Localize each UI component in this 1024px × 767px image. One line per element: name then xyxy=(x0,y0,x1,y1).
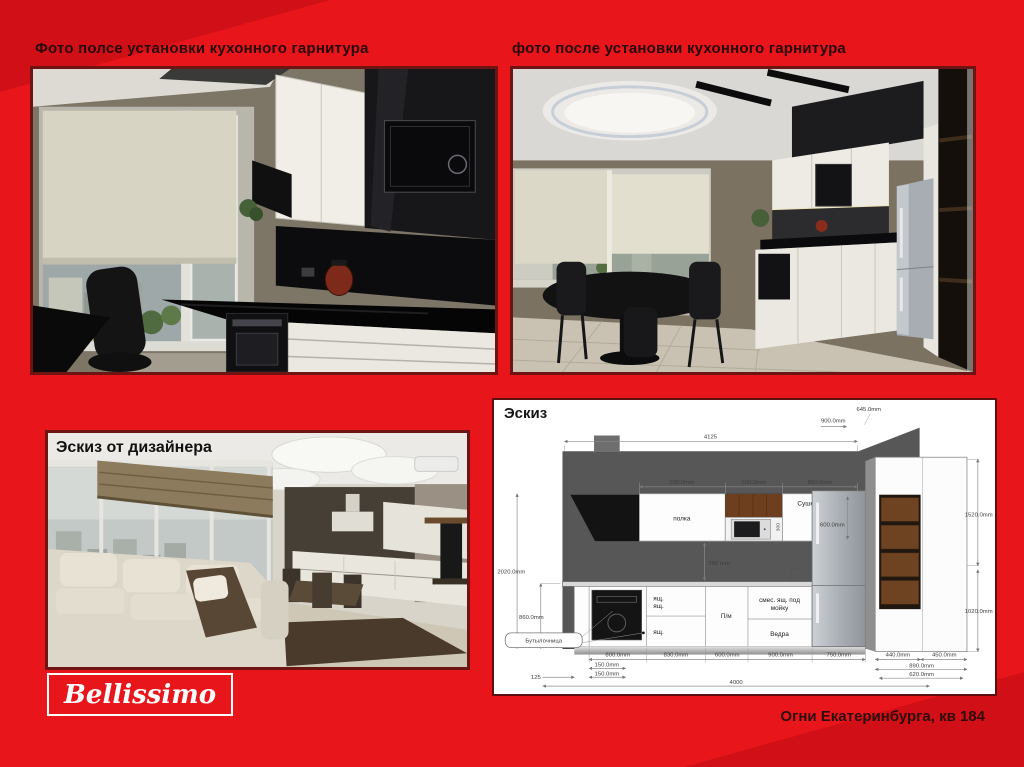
cabinet-label: ящ. xyxy=(653,603,664,610)
cabinet-label-dishwasher: П/м xyxy=(721,613,732,620)
sketch-panel: Эскиз xyxy=(492,398,997,696)
dim-label: 890.0mm xyxy=(909,663,934,669)
drawing-fridge xyxy=(812,491,865,647)
built-in-oven xyxy=(816,164,852,206)
dim-label: 600.0mm xyxy=(742,480,767,486)
dim-label: 2020.0mm xyxy=(497,570,525,576)
cabinet-label-buckets: Ведра xyxy=(770,631,789,638)
wall-shelf xyxy=(425,518,467,524)
dim-label: 900.0mm xyxy=(768,653,793,659)
roller-blind xyxy=(43,111,236,262)
dim-label: 830.0mm xyxy=(664,653,689,659)
cabinet-label-sink: мойку xyxy=(771,604,789,612)
dim-label: 4000 xyxy=(730,680,744,686)
dim-label: 930.0mm xyxy=(670,480,695,486)
dim-label: 600.0mm xyxy=(820,522,845,528)
plant xyxy=(751,209,769,227)
dim-label: 800.0mm xyxy=(808,480,833,486)
ac-unit xyxy=(415,457,458,472)
dim-label: 125 xyxy=(531,675,542,681)
fridge xyxy=(897,178,934,339)
dim-label: 150.0mm xyxy=(595,662,620,668)
drawing-base-cabinets: ящ. ящ. ящ. П/м смес. ящ. под мойку Ведр… xyxy=(574,586,812,646)
bellissimo-logo: Bellissimo xyxy=(47,673,233,716)
tall-shelf-unit xyxy=(938,69,973,372)
dim-label: 900.0mm xyxy=(821,419,846,425)
logo-text: Bellissimo xyxy=(64,680,216,710)
dim-label: 645.0mm xyxy=(856,407,881,413)
cabinet-label-sink: смес. ящ. под xyxy=(759,597,800,604)
dim-label: 760 mm xyxy=(708,561,729,567)
cabinet-label: ящ. xyxy=(653,595,664,602)
dim-label: 750.0mm xyxy=(826,653,851,659)
kettle xyxy=(816,220,828,232)
living-room-render xyxy=(48,433,467,667)
dim-label: 1020.0mm xyxy=(965,609,993,615)
dim-label: 600.0mm xyxy=(715,653,740,659)
dim-label: 150.0mm xyxy=(595,671,620,677)
cabinet-label: ящ. xyxy=(653,629,664,636)
dark-appliance-panel xyxy=(365,69,495,240)
kitchen-elevation-drawing: полка Сушка xyxy=(494,400,995,694)
dim-label: 440.0mm xyxy=(886,653,911,659)
project-footer: Огни Екатеринбурга, кв 184 xyxy=(780,708,985,725)
drawing-tall-cabinet xyxy=(865,457,967,651)
dim-label: 860.0mm xyxy=(519,615,544,621)
window xyxy=(513,168,711,287)
photo-after-install-right xyxy=(510,66,976,375)
sofa xyxy=(48,549,289,667)
dim-label: 300 xyxy=(776,523,782,531)
photo-after-install-left xyxy=(30,66,498,375)
designer-sketch-label: Эскиз от дизайнера xyxy=(56,439,212,457)
caption-photo-right: фото после установки кухонного гарнитура xyxy=(512,40,846,57)
dim-label: 800.0mm xyxy=(605,653,630,659)
kitchen-photo-1 xyxy=(33,69,495,372)
cabinet-label-shelf: полка xyxy=(673,515,691,522)
caption-photo-left: Фото полсе установки кухонного гарнитура xyxy=(35,40,369,57)
ceiling-light xyxy=(543,81,717,141)
slide: Фото полсе установки кухонного гарнитура… xyxy=(0,0,1024,767)
oven xyxy=(226,313,287,372)
hood xyxy=(332,512,373,532)
sketch-title: Эскиз xyxy=(504,405,547,422)
oven xyxy=(758,254,790,300)
dim-label: 1520.0mm xyxy=(965,512,993,518)
photo-designer-sketch: Эскиз от дизайнера xyxy=(45,430,470,670)
dim-label: 450.0mm xyxy=(932,653,957,659)
kitchen-photo-2 xyxy=(513,69,973,372)
dim-label: 620.0mm xyxy=(909,672,934,678)
bottle-label: Бутылочница xyxy=(525,639,562,645)
dim-label: 4125 xyxy=(704,434,718,440)
